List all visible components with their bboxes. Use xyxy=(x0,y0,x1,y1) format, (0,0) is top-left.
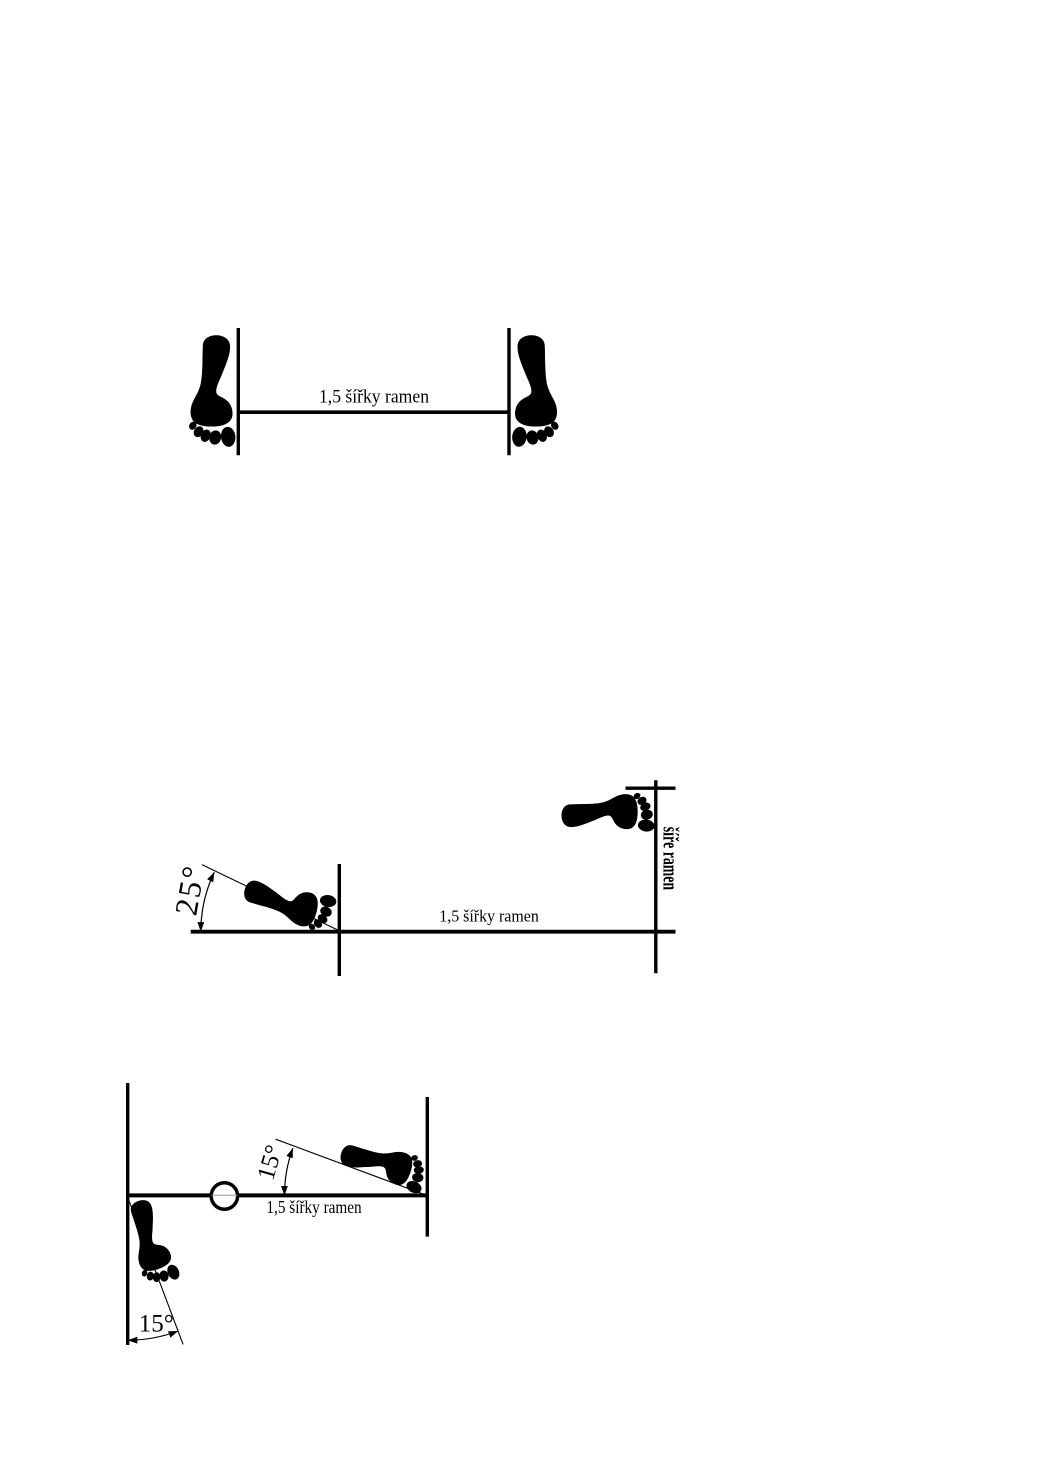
svg-text:1,5 šířky ramen: 1,5 šířky ramen xyxy=(266,1197,362,1217)
svg-text:15°: 15° xyxy=(139,1311,174,1338)
svg-text:1,5 šířky ramen: 1,5 šířky ramen xyxy=(319,387,429,408)
svg-text:15°: 15° xyxy=(253,1142,289,1183)
svg-text:šíře ramen: šíře ramen xyxy=(659,827,684,890)
svg-text:25°: 25° xyxy=(167,862,211,918)
svg-text:1,5 šířky ramen: 1,5 šířky ramen xyxy=(439,906,539,925)
